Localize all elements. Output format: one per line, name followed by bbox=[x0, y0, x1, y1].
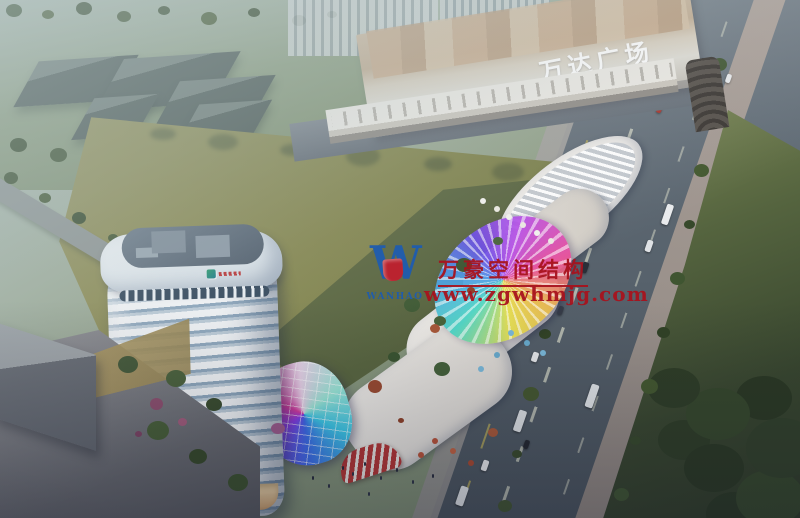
tower-roof-deck bbox=[121, 224, 264, 269]
wanhao-logo: W WANHAO bbox=[366, 246, 424, 312]
tree-cluster bbox=[648, 368, 700, 408]
watermark-url: www.zgwhmjg.com bbox=[424, 282, 649, 306]
tower-brand-wordmark bbox=[219, 271, 241, 276]
terrace-autumn-trees bbox=[368, 380, 382, 393]
tower-brand-logo bbox=[207, 269, 216, 278]
watermark-company-text: 万豪空间结构 bbox=[438, 258, 588, 282]
tower-roof-structures bbox=[151, 230, 186, 253]
plaza-trees bbox=[118, 356, 138, 373]
wanhao-shield-icon bbox=[382, 258, 403, 281]
umbrella-dots-white bbox=[506, 214, 512, 220]
watermark-url-text: www.zgwhmjg.com bbox=[424, 282, 649, 306]
plaza-flower-trees bbox=[150, 398, 163, 410]
wanhao-logo-name: WANHAO bbox=[366, 292, 424, 302]
tree-row-left-road bbox=[4, 172, 18, 184]
aerial-rendering-scene: 万达广场 W bbox=[0, 0, 800, 518]
umbrella-dots-red bbox=[432, 438, 438, 444]
tree-cluster bbox=[10, 138, 27, 152]
tree-cluster bbox=[6, 4, 22, 17]
people-dots bbox=[342, 466, 344, 470]
field-tree-shadows bbox=[150, 128, 176, 140]
umbrella-dots-blue bbox=[508, 330, 514, 336]
watermark: W WANHAO 万豪空间结构 www.zgwhmjg.com bbox=[366, 246, 616, 320]
